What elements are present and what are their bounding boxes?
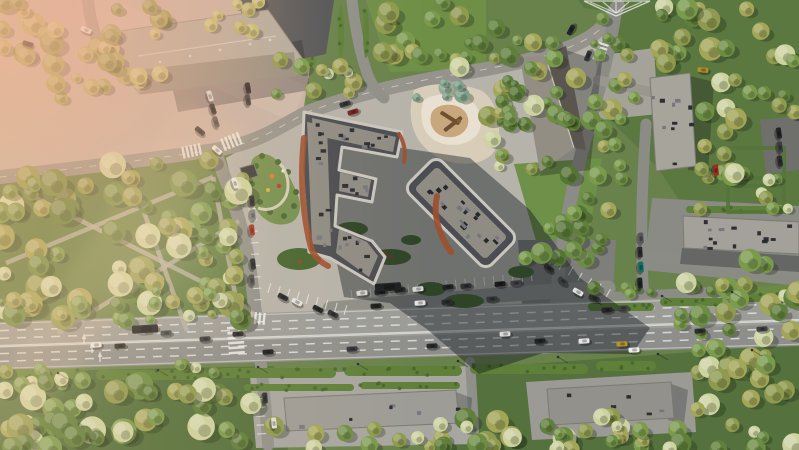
hedge-row xyxy=(660,298,726,307)
aerial-render-viewport: Aerial architectural rendering of a resi… xyxy=(0,0,799,450)
east-slab xyxy=(683,216,799,254)
street-right-vertical xyxy=(642,124,646,306)
ne-midrise xyxy=(650,73,696,171)
lens-flare-overlay xyxy=(0,0,430,450)
aerial-site-plan-render: Aerial architectural rendering of a resi… xyxy=(0,0,799,450)
hedge-row xyxy=(596,361,656,371)
